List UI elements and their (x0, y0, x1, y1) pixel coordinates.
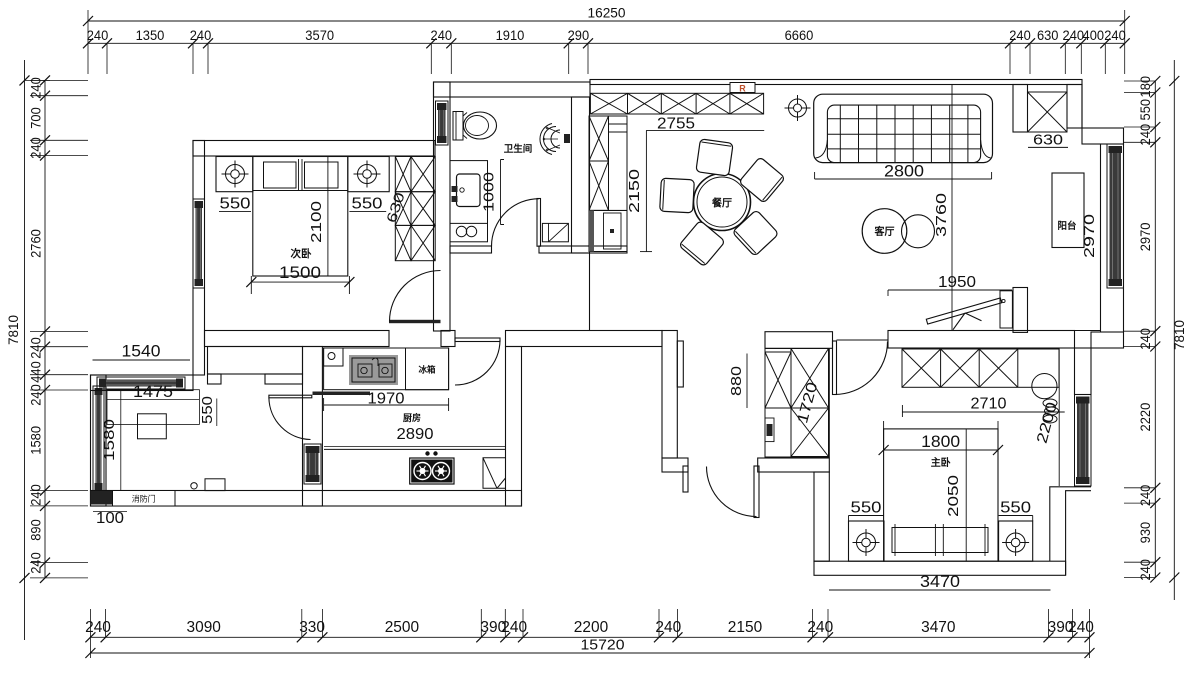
svg-text:1350: 1350 (136, 28, 165, 43)
svg-text:2500: 2500 (385, 619, 420, 636)
svg-text:2970: 2970 (1081, 214, 1098, 258)
svg-text:客厅: 客厅 (874, 225, 895, 238)
svg-text:2970: 2970 (1138, 222, 1153, 251)
svg-text:240: 240 (1138, 124, 1153, 146)
svg-text:2150: 2150 (728, 619, 763, 636)
svg-text:630: 630 (1037, 28, 1059, 43)
svg-text:880: 880 (728, 366, 745, 396)
svg-text:1910: 1910 (496, 28, 525, 43)
svg-text:240: 240 (431, 28, 453, 43)
svg-text:180: 180 (1138, 76, 1153, 98)
svg-text:1500: 1500 (279, 263, 321, 282)
svg-text:1950: 1950 (938, 274, 976, 291)
svg-text:240: 240 (190, 28, 212, 43)
svg-text:2150: 2150 (626, 169, 643, 213)
svg-text:1970: 1970 (368, 391, 405, 408)
svg-text:3470: 3470 (921, 619, 956, 636)
svg-text:240: 240 (1009, 28, 1031, 43)
svg-text:16250: 16250 (588, 6, 626, 21)
svg-text:2755: 2755 (657, 116, 695, 133)
svg-text:2800: 2800 (884, 162, 924, 181)
svg-text:290: 290 (568, 28, 590, 43)
svg-text:240: 240 (655, 619, 681, 636)
svg-text:2050: 2050 (945, 475, 962, 517)
svg-text:1800: 1800 (921, 433, 960, 451)
svg-text:240: 240 (29, 384, 44, 406)
svg-text:550: 550 (199, 396, 216, 424)
svg-text:3760: 3760 (933, 193, 950, 237)
svg-text:厨房: 厨房 (403, 412, 421, 423)
svg-text:2220: 2220 (1138, 403, 1153, 432)
svg-text:15720: 15720 (581, 637, 625, 654)
svg-text:240: 240 (501, 619, 527, 636)
svg-text:240: 240 (1138, 328, 1153, 350)
svg-text:240: 240 (29, 337, 44, 359)
svg-text:阳台: 阳台 (1057, 220, 1077, 232)
svg-text:冰箱: 冰箱 (418, 365, 436, 375)
svg-text:550: 550 (220, 196, 251, 213)
svg-text:1475: 1475 (133, 383, 173, 401)
svg-text:240: 240 (1104, 28, 1126, 43)
svg-text:550: 550 (1138, 99, 1153, 121)
svg-text:240: 240 (1138, 485, 1153, 507)
svg-text:240: 240 (29, 552, 44, 574)
svg-text:630: 630 (1033, 132, 1063, 149)
svg-text:240: 240 (807, 619, 833, 636)
svg-text:卫生间: 卫生间 (504, 143, 533, 155)
svg-text:6660: 6660 (785, 28, 814, 43)
svg-text:7810: 7810 (1172, 320, 1187, 350)
svg-text:1000: 1000 (481, 172, 498, 212)
svg-text:3570: 3570 (305, 28, 334, 43)
svg-text:240: 240 (87, 28, 109, 43)
svg-text:100: 100 (96, 510, 124, 527)
svg-text:440: 440 (29, 361, 44, 383)
svg-text:330: 330 (299, 619, 325, 636)
svg-text:餐厅: 餐厅 (711, 197, 732, 210)
svg-text:240: 240 (29, 77, 44, 99)
svg-text:2710: 2710 (971, 396, 1007, 413)
svg-text:550: 550 (352, 196, 383, 213)
svg-text:240: 240 (29, 484, 44, 506)
svg-text:240: 240 (1068, 619, 1094, 636)
svg-text:次卧: 次卧 (291, 247, 312, 260)
svg-text:240: 240 (1138, 559, 1153, 581)
svg-text:930: 930 (1138, 522, 1153, 544)
svg-text:1580: 1580 (101, 419, 118, 461)
svg-text:240: 240 (1063, 28, 1085, 43)
svg-text:2100: 2100 (308, 201, 325, 243)
svg-text:240: 240 (85, 619, 111, 636)
svg-text:1580: 1580 (29, 426, 44, 455)
svg-text:550: 550 (1000, 500, 1031, 517)
svg-text:400: 400 (1083, 28, 1105, 43)
svg-text:2760: 2760 (29, 229, 44, 258)
svg-text:1540: 1540 (122, 343, 161, 361)
svg-text:消防门: 消防门 (132, 494, 156, 504)
svg-text:2890: 2890 (397, 426, 434, 443)
svg-text:3470: 3470 (920, 573, 960, 591)
svg-text:240: 240 (29, 137, 44, 159)
svg-text:R: R (739, 83, 746, 93)
svg-text:3090: 3090 (187, 619, 222, 636)
svg-text:主卧: 主卧 (931, 456, 951, 469)
svg-text:550: 550 (851, 500, 882, 517)
svg-text:700: 700 (29, 107, 44, 129)
svg-text:2200: 2200 (574, 619, 609, 636)
svg-text:7810: 7810 (6, 315, 21, 345)
svg-text:890: 890 (29, 519, 44, 541)
